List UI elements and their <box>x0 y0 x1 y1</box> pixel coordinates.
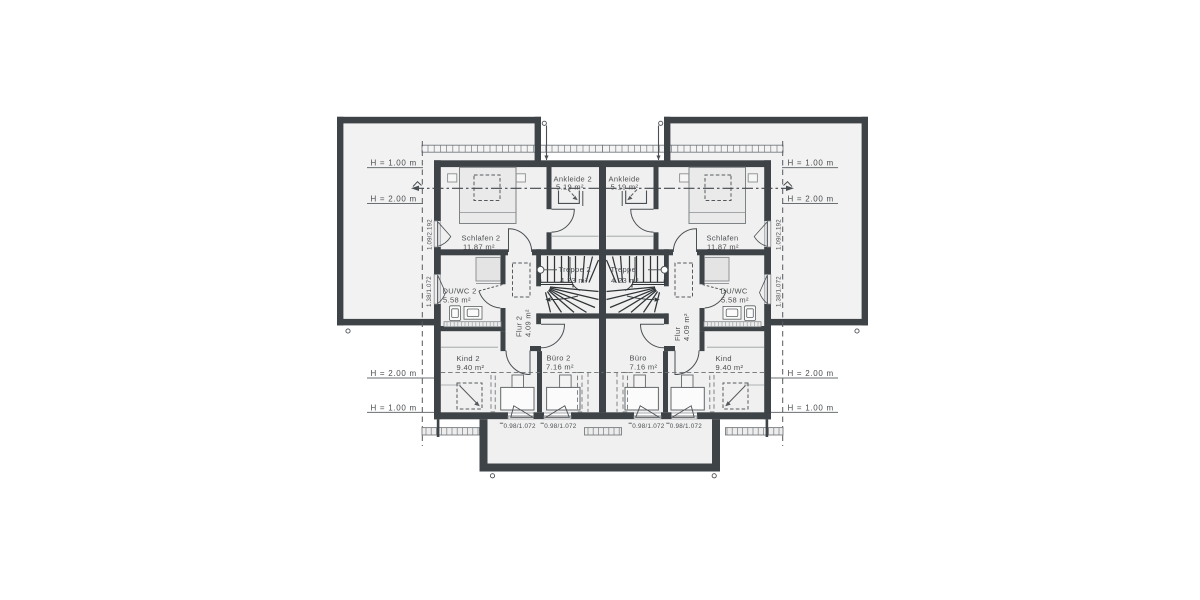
svg-text:7.16 m²: 7.16 m² <box>630 362 658 371</box>
svg-text:11.87 m²: 11.87 m² <box>463 242 495 251</box>
svg-text:Flur: Flur <box>673 327 682 341</box>
svg-text:H = 2.00 m: H = 2.00 m <box>371 369 417 378</box>
svg-text:5.58 m²: 5.58 m² <box>721 296 749 305</box>
svg-text:4.23 m²: 4.23 m² <box>611 276 639 285</box>
svg-text:Kind: Kind <box>716 354 732 363</box>
svg-text:Büro 2: Büro 2 <box>547 354 571 363</box>
svg-text:Flur 2: Flur 2 <box>515 316 524 337</box>
svg-text:DU/WC 2: DU/WC 2 <box>443 286 477 295</box>
svg-text:9.40 m²: 9.40 m² <box>716 363 744 372</box>
svg-text:11.87 m²: 11.87 m² <box>707 242 739 251</box>
svg-text:Büro: Büro <box>630 354 647 363</box>
svg-text:H = 2.00 m: H = 2.00 m <box>371 194 417 203</box>
svg-text:4.09 m²: 4.09 m² <box>524 309 533 337</box>
svg-text:H = 1.00 m: H = 1.00 m <box>788 403 834 412</box>
svg-text:H = 1.00 m: H = 1.00 m <box>788 158 834 167</box>
svg-text:H = 1.00 m: H = 1.00 m <box>371 158 417 167</box>
svg-text:DU/WC: DU/WC <box>721 286 748 295</box>
svg-text:1.09/2.192: 1.09/2.192 <box>426 219 433 250</box>
svg-text:7.16 m²: 7.16 m² <box>546 362 574 371</box>
svg-text:Treppe: Treppe <box>611 265 637 274</box>
svg-text:Treppe 2: Treppe 2 <box>559 265 592 274</box>
svg-text:4.09 m²: 4.09 m² <box>682 313 691 341</box>
svg-text:H = 2.00 m: H = 2.00 m <box>788 194 834 203</box>
svg-text:4.23 m²: 4.23 m² <box>560 276 588 285</box>
svg-text:H = 1.00 m: H = 1.00 m <box>371 403 417 412</box>
svg-text:5.58 m²: 5.58 m² <box>443 296 471 305</box>
svg-text:Kind 2: Kind 2 <box>457 354 480 363</box>
svg-text:1.38/1.072: 1.38/1.072 <box>776 276 783 307</box>
svg-text:5.19 m²: 5.19 m² <box>611 182 639 191</box>
svg-text:H = 2.00 m: H = 2.00 m <box>788 369 834 378</box>
svg-text:1.38/1.072: 1.38/1.072 <box>426 276 433 307</box>
svg-text:1.09/2.192: 1.09/2.192 <box>776 219 783 250</box>
svg-text:Schlafen: Schlafen <box>707 233 739 242</box>
svg-text:0.98/1.072: 0.98/1.072 <box>504 423 537 430</box>
svg-text:9.40 m²: 9.40 m² <box>457 363 485 372</box>
svg-text:Schlafen 2: Schlafen 2 <box>462 233 501 242</box>
svg-text:5.19 m²: 5.19 m² <box>556 182 584 191</box>
svg-text:0.98/1.072: 0.98/1.072 <box>670 423 703 430</box>
svg-text:0.98/1.072: 0.98/1.072 <box>632 423 665 430</box>
svg-text:0.98/1.072: 0.98/1.072 <box>544 423 577 430</box>
